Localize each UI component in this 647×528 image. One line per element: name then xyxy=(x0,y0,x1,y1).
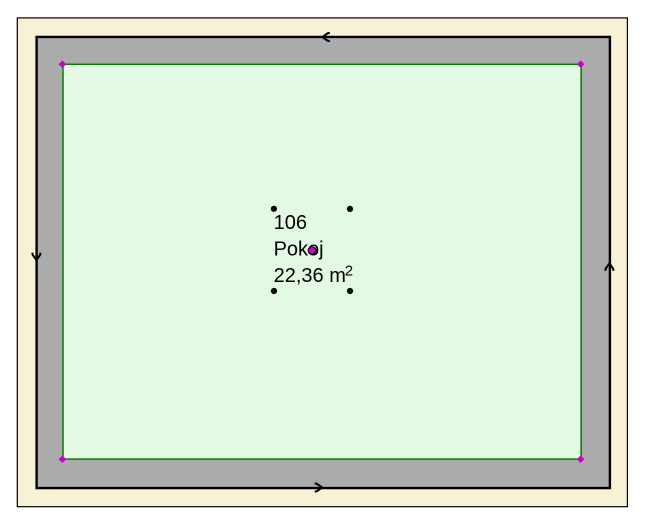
svg-text:106: 106 xyxy=(274,212,307,234)
svg-text:22,36 m: 22,36 m xyxy=(274,265,346,287)
svg-text:2: 2 xyxy=(345,262,353,279)
